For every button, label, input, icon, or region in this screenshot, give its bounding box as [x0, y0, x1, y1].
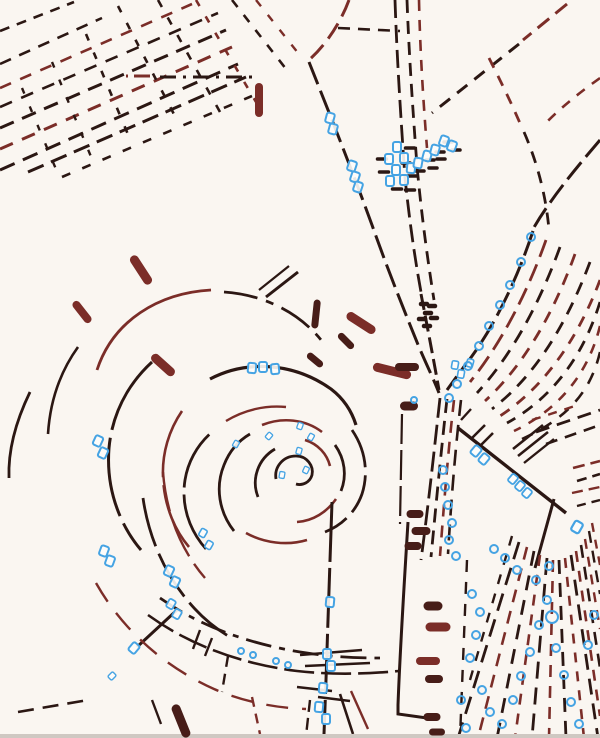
blue-circle-marker: [468, 590, 476, 598]
blue-circle-marker: [509, 696, 517, 704]
ink-stroke: [532, 558, 547, 738]
ink-stroke: [461, 409, 471, 420]
blue-square-marker: [392, 165, 400, 175]
ink-stroke: [431, 399, 447, 557]
ink-stroke: [448, 400, 461, 554]
ink-stroke: [489, 58, 522, 128]
blue-square-marker: [478, 453, 491, 466]
blue-square-marker: [327, 661, 335, 671]
blue-circle-marker: [526, 648, 534, 656]
blue-square-marker: [248, 363, 257, 374]
blue-circle-marker: [453, 380, 461, 388]
blue-circle-marker: [411, 397, 417, 403]
ink-stroke: [0, 13, 218, 107]
ink-stroke: [143, 498, 230, 637]
blue-circle-marker: [250, 652, 256, 658]
blue-square-marker: [325, 112, 335, 124]
blue-square-marker: [307, 433, 315, 441]
ink-stroke: [458, 428, 566, 513]
blue-square-marker: [198, 528, 208, 538]
blue-circle-marker: [466, 654, 474, 662]
blue-square-marker: [451, 361, 459, 370]
blue-square-marker: [385, 154, 393, 164]
blue-square-marker: [92, 435, 103, 447]
ink-stroke: [226, 407, 286, 421]
blue-circle-marker: [285, 662, 291, 668]
blue-square-marker: [271, 364, 280, 375]
blue-circle-marker: [273, 658, 279, 664]
ink-stroke: [500, 280, 600, 416]
blue-square-marker: [328, 123, 338, 135]
blue-circle-marker: [448, 519, 456, 527]
ink-stroke: [148, 615, 399, 674]
ink-stroke: [318, 697, 350, 701]
blue-square-marker: [296, 422, 303, 430]
ink-stroke: [532, 405, 578, 420]
blue-circle-marker: [486, 708, 494, 716]
blue-square-marker: [319, 683, 328, 694]
ink-stroke: [577, 474, 600, 481]
ink-stroke: [351, 691, 368, 729]
blue-circle-marker: [552, 644, 560, 652]
blue-square-marker: [386, 176, 394, 186]
scanned-artwork: Abstract ink drawing: dashed dark-brown …: [0, 0, 600, 738]
blue-square-marker: [302, 466, 309, 474]
blue-square-marker: [265, 432, 273, 440]
ink-stroke: [480, 433, 493, 446]
blue-square-marker: [323, 649, 331, 659]
ink-stroke: [262, 420, 322, 432]
blue-square-marker: [232, 440, 240, 448]
ink-stroke: [152, 700, 161, 724]
ink-stroke: [0, 2, 74, 31]
blue-circle-marker: [567, 698, 575, 706]
ink-stroke: [305, 663, 370, 666]
blue-circle-marker: [476, 608, 484, 616]
ink-stroke: [0, 64, 238, 170]
blue-square-marker: [570, 520, 583, 534]
ink-stroke: [0, 4, 192, 88]
ink-stroke: [421, 398, 440, 560]
blue-square-marker: [400, 153, 408, 163]
blue-square-marker: [97, 447, 108, 459]
ink-stroke: [28, 77, 246, 172]
ink-stroke: [255, 449, 275, 497]
ink-stroke: [518, 432, 548, 456]
blue-square-marker: [347, 160, 358, 172]
blue-square-marker: [296, 447, 303, 455]
ink-stroke: [400, 414, 402, 524]
ink-stroke: [419, 0, 427, 148]
marker-blob: [176, 709, 186, 733]
ink-stroke: [432, 44, 519, 113]
ink-stroke: [9, 392, 30, 478]
ink-stroke: [193, 630, 200, 649]
ink-stroke: [447, 231, 533, 390]
ink-stroke: [252, 697, 260, 734]
ink-stroke: [0, 30, 226, 128]
ink-stroke: [163, 472, 205, 578]
blue-square-marker: [393, 142, 401, 152]
ink-stroke: [109, 362, 152, 550]
ink-stroke: [259, 266, 289, 290]
blue-markers-layer: [92, 112, 598, 732]
ink-stroke: [533, 140, 600, 229]
ink-stroke: [398, 522, 434, 719]
ink-stroke: [52, 62, 94, 164]
ink-stroke: [266, 272, 298, 297]
blue-square-marker: [430, 144, 440, 156]
marker-blob: [341, 336, 350, 345]
marker-blob: [310, 356, 319, 364]
blue-circle-marker: [478, 686, 486, 694]
ink-stroke: [472, 425, 485, 438]
ink-stroke: [440, 400, 454, 556]
ink-stroke: [572, 487, 600, 493]
ink-stroke: [338, 28, 400, 31]
blue-circle-marker: [575, 720, 583, 728]
ink-stroke: [0, 18, 102, 64]
ink-stroke: [577, 500, 600, 506]
blue-square-marker: [172, 608, 183, 619]
blue-circle-marker: [462, 724, 470, 732]
marker-blob: [351, 316, 371, 329]
blue-circle-marker: [475, 342, 483, 350]
blue-circle-marker: [445, 394, 453, 402]
blue-circle-marker: [584, 641, 592, 649]
artwork-svg: [0, 0, 600, 738]
blue-circle-marker: [472, 631, 480, 639]
ink-stroke: [470, 536, 512, 680]
ink-stroke: [581, 545, 600, 668]
marker-blob: [76, 305, 87, 319]
blue-circle-marker: [452, 552, 460, 560]
ink-stroke: [335, 445, 344, 491]
ink-stroke: [535, 499, 554, 568]
ink-stroke: [421, 294, 439, 390]
ink-stroke: [48, 347, 78, 434]
ink-stroke: [546, 425, 600, 444]
blue-square-marker: [128, 642, 141, 655]
marker-blob: [134, 260, 147, 280]
ink-stroke: [523, 4, 567, 40]
ink-stroke: [573, 461, 600, 468]
blue-square-marker: [279, 471, 285, 478]
blue-square-marker: [315, 702, 324, 713]
blue-square-marker: [400, 175, 408, 185]
ink-stroke: [524, 132, 549, 230]
blue-square-marker: [108, 672, 117, 681]
blue-square-marker: [204, 540, 214, 550]
ink-stroke: [256, 0, 302, 58]
ink-stroke: [222, 656, 228, 692]
ink-stroke: [210, 366, 356, 425]
ink-stroke: [543, 78, 600, 126]
ink-stroke: [246, 533, 307, 543]
blue-square-marker: [326, 597, 335, 608]
blue-square-marker: [322, 714, 330, 724]
marker-blob: [156, 358, 171, 371]
ink-stroke: [309, 0, 349, 60]
ink-strokes-layer: [0, 0, 600, 738]
blue-circle-marker: [238, 648, 244, 654]
marker-blob: [315, 303, 317, 325]
blue-square-marker: [457, 370, 465, 379]
blue-square-marker: [259, 362, 267, 372]
ink-stroke: [18, 700, 88, 712]
ink-stroke: [232, 0, 290, 74]
ink-stroke: [219, 434, 250, 531]
blue-square-marker: [353, 181, 364, 193]
ink-stroke: [224, 292, 325, 345]
ink-stroke: [470, 240, 546, 382]
ink-stroke: [306, 700, 310, 736]
blue-circle-marker: [490, 545, 498, 553]
